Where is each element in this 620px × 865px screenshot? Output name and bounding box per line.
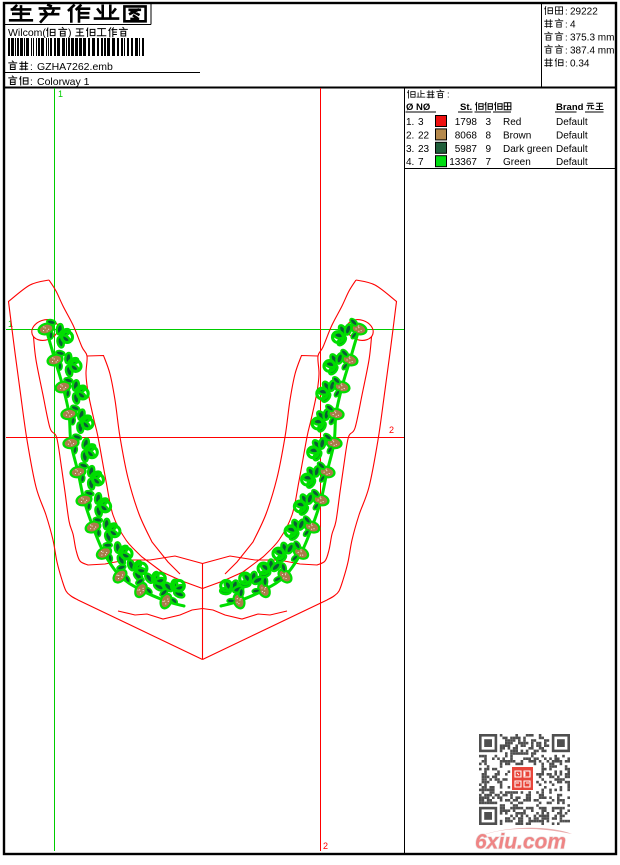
svg-text:Default: Default: [556, 117, 588, 128]
svg-text:2.: 2.: [406, 130, 414, 141]
svg-text:2: 2: [323, 841, 328, 851]
svg-text:7: 7: [418, 157, 424, 168]
svg-text::: :: [565, 33, 568, 44]
svg-text:6xiu.com: 6xiu.com: [475, 831, 566, 854]
svg-text:4: 4: [570, 20, 576, 31]
svg-text:GZHA7262.emb: GZHA7262.emb: [37, 61, 113, 73]
svg-text:1798: 1798: [455, 117, 478, 128]
svg-text:8: 8: [485, 130, 491, 141]
svg-text:Wilcom(: Wilcom(: [8, 27, 46, 39]
svg-text::: :: [447, 90, 450, 100]
svg-text:St.: St.: [460, 102, 472, 113]
svg-text:5987: 5987: [455, 144, 478, 155]
svg-text:22: 22: [418, 130, 430, 141]
svg-text:3: 3: [485, 117, 491, 128]
svg-text:1.: 1.: [406, 117, 414, 128]
svg-text:375.3 mm: 375.3 mm: [570, 33, 614, 44]
svg-text::: :: [565, 59, 568, 70]
svg-text:Dark green: Dark green: [503, 144, 552, 155]
svg-text:9: 9: [485, 144, 491, 155]
svg-text:Colorway 1: Colorway 1: [37, 76, 90, 88]
svg-text:Default: Default: [556, 144, 588, 155]
svg-text::: :: [30, 62, 33, 73]
svg-text:Brown: Brown: [503, 130, 531, 141]
svg-text:Green: Green: [503, 157, 531, 168]
svg-text:29222: 29222: [570, 7, 598, 18]
svg-text:387.4 mm: 387.4 mm: [570, 46, 614, 57]
svg-text:Default: Default: [556, 130, 588, 141]
svg-text:NØ: NØ: [416, 102, 430, 113]
svg-text:3: 3: [418, 117, 424, 128]
svg-text::: :: [30, 77, 33, 88]
svg-text:): ): [68, 27, 72, 39]
svg-text::: :: [565, 7, 568, 18]
svg-text::: :: [565, 20, 568, 31]
svg-text:2: 2: [389, 425, 394, 435]
svg-text:0.34: 0.34: [570, 59, 590, 70]
svg-text:Ø: Ø: [406, 102, 413, 113]
svg-text:8068: 8068: [455, 130, 478, 141]
svg-text:13367: 13367: [449, 157, 477, 168]
svg-text::: :: [565, 46, 568, 57]
svg-text:Default: Default: [556, 157, 588, 168]
svg-text:Red: Red: [503, 117, 521, 128]
svg-text:7: 7: [485, 157, 491, 168]
svg-text:4.: 4.: [406, 157, 414, 168]
svg-text:3.: 3.: [406, 144, 414, 155]
svg-text:1: 1: [58, 89, 63, 99]
svg-text:23: 23: [418, 144, 430, 155]
svg-text:Brand: Brand: [556, 102, 584, 113]
